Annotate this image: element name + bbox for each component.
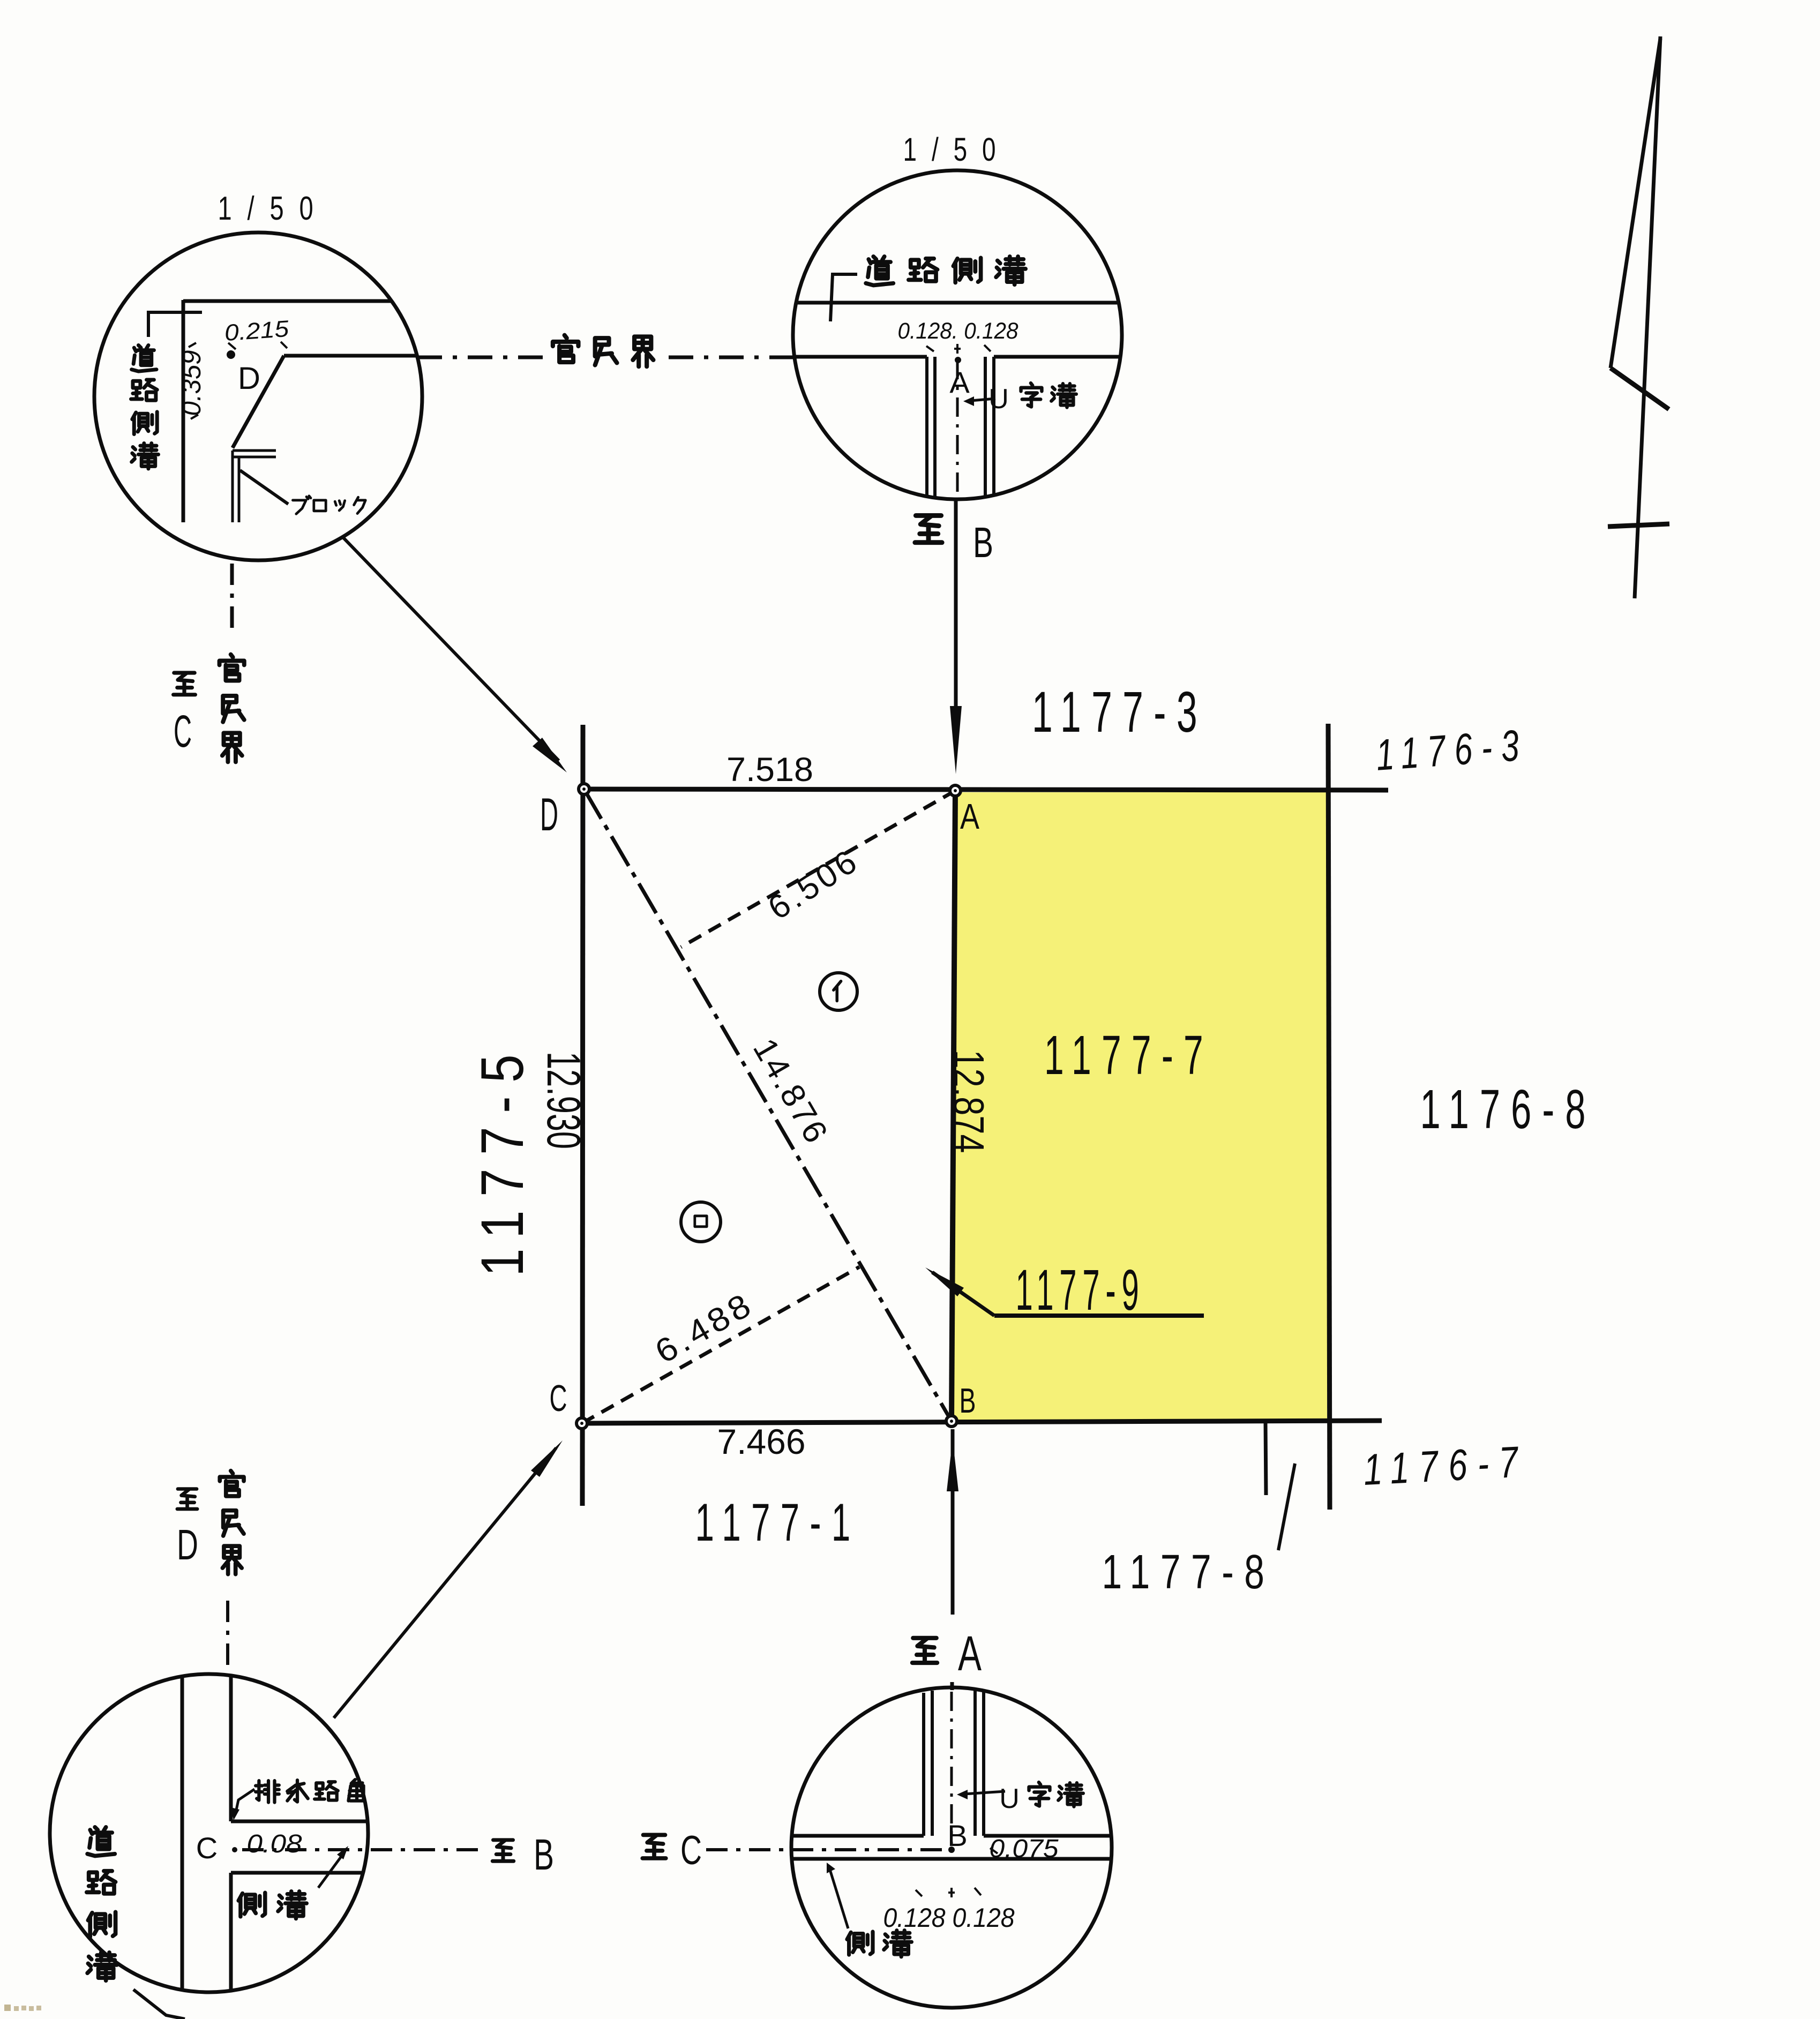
- svg-text:1177-3: 1177-3: [1032, 679, 1208, 744]
- svg-text:B: B: [947, 1819, 967, 1852]
- svg-text:D: D: [238, 361, 260, 396]
- svg-text:7.518: 7.518: [726, 751, 813, 789]
- svg-text:1176-8: 1176-8: [1420, 1078, 1597, 1140]
- svg-text:C: C: [550, 1377, 567, 1419]
- svg-text:0.08: 0.08: [247, 1830, 302, 1858]
- svg-text:0.075: 0.075: [990, 1835, 1059, 1863]
- svg-text:12.930: 12.930: [537, 1052, 590, 1149]
- svg-text:1177-5: 1177-5: [469, 1041, 536, 1277]
- svg-text:0.359: 0.359: [176, 350, 206, 416]
- svg-text:D: D: [540, 789, 558, 840]
- svg-text:C: C: [680, 1828, 702, 1873]
- svg-text:1177-9: 1177-9: [1016, 1257, 1145, 1322]
- svg-text:D: D: [177, 1521, 198, 1568]
- svg-text:1177-8: 1177-8: [1102, 1545, 1275, 1599]
- svg-text:0.128 0.128: 0.128 0.128: [883, 1903, 1015, 1933]
- svg-text:A: A: [960, 797, 979, 837]
- svg-text:1176-7: 1176-7: [1362, 1437, 1529, 1495]
- svg-text:1177-7: 1177-7: [1044, 1024, 1214, 1086]
- svg-text:B: B: [534, 1830, 554, 1879]
- svg-text:7.466: 7.466: [717, 1422, 806, 1461]
- svg-text:1/50: 1/50: [218, 190, 329, 227]
- svg-text:0.215: 0.215: [223, 316, 290, 346]
- svg-text:12.874: 12.874: [945, 1050, 993, 1153]
- svg-text:1177-1: 1177-1: [695, 1492, 861, 1552]
- svg-text:1/50: 1/50: [903, 131, 1011, 168]
- svg-text:B: B: [960, 1381, 976, 1420]
- svg-text:B: B: [973, 519, 993, 566]
- svg-text:C: C: [196, 1831, 218, 1865]
- svg-text:0.128. 0.128: 0.128. 0.128: [898, 318, 1018, 344]
- svg-text:C: C: [174, 706, 192, 756]
- svg-text:U: U: [999, 1783, 1020, 1814]
- svg-text:A: A: [958, 1626, 982, 1681]
- svg-text:A: A: [949, 365, 970, 399]
